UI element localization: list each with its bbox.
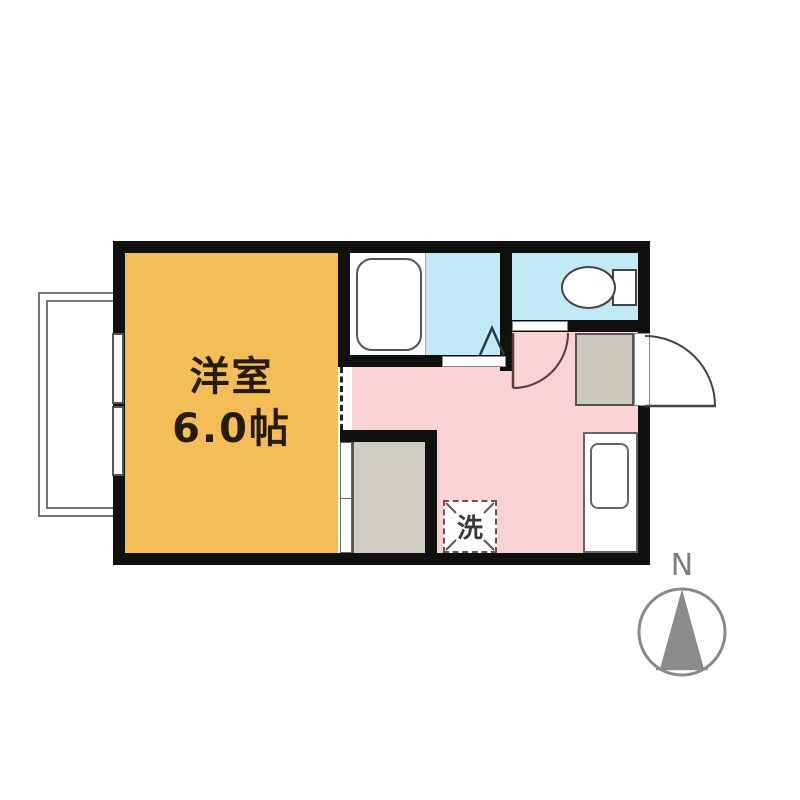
sliding-window-icon [112, 406, 124, 476]
entrance-door-opening [634, 333, 650, 406]
room-opening-dashed [340, 367, 352, 430]
wall-right-lower [638, 406, 650, 565]
balcony-inner-rail [46, 300, 122, 509]
wall-closet-right [425, 430, 437, 553]
closet-sliding-door-icon [340, 498, 352, 553]
sliding-window-icon [112, 333, 124, 404]
compass-icon [639, 589, 725, 675]
room-name-text: 洋室 [190, 351, 274, 403]
wall-closet-top [340, 430, 437, 442]
kitchen-sink-icon [590, 443, 629, 509]
room-size-text: 6.0帖 [172, 403, 291, 455]
wall-room-bath-divider [338, 241, 350, 367]
entrance-door-arc-icon [645, 336, 716, 406]
bathroom-floor [426, 253, 500, 355]
toilet-door-opening [512, 321, 568, 331]
closet-floor [352, 442, 425, 553]
floor-plan: 洋室 6.0帖 洗 N [0, 0, 800, 800]
bathtub-icon [356, 258, 422, 351]
room-label: 洋室 6.0帖 [125, 253, 338, 553]
north-text: N [671, 548, 693, 583]
wall-bath-toilet-divider [500, 241, 512, 371]
washing-machine-text: 洗 [457, 508, 483, 545]
bath-folding-door-opening [442, 356, 506, 367]
compass-north-label: N [657, 549, 707, 581]
washing-machine-label: 洗 [443, 500, 497, 553]
closet-sliding-door-icon [340, 442, 352, 499]
toilet-icon [561, 266, 616, 309]
wall-bottom [113, 553, 650, 565]
wall-top [113, 241, 650, 253]
entrance-floor [575, 333, 634, 406]
